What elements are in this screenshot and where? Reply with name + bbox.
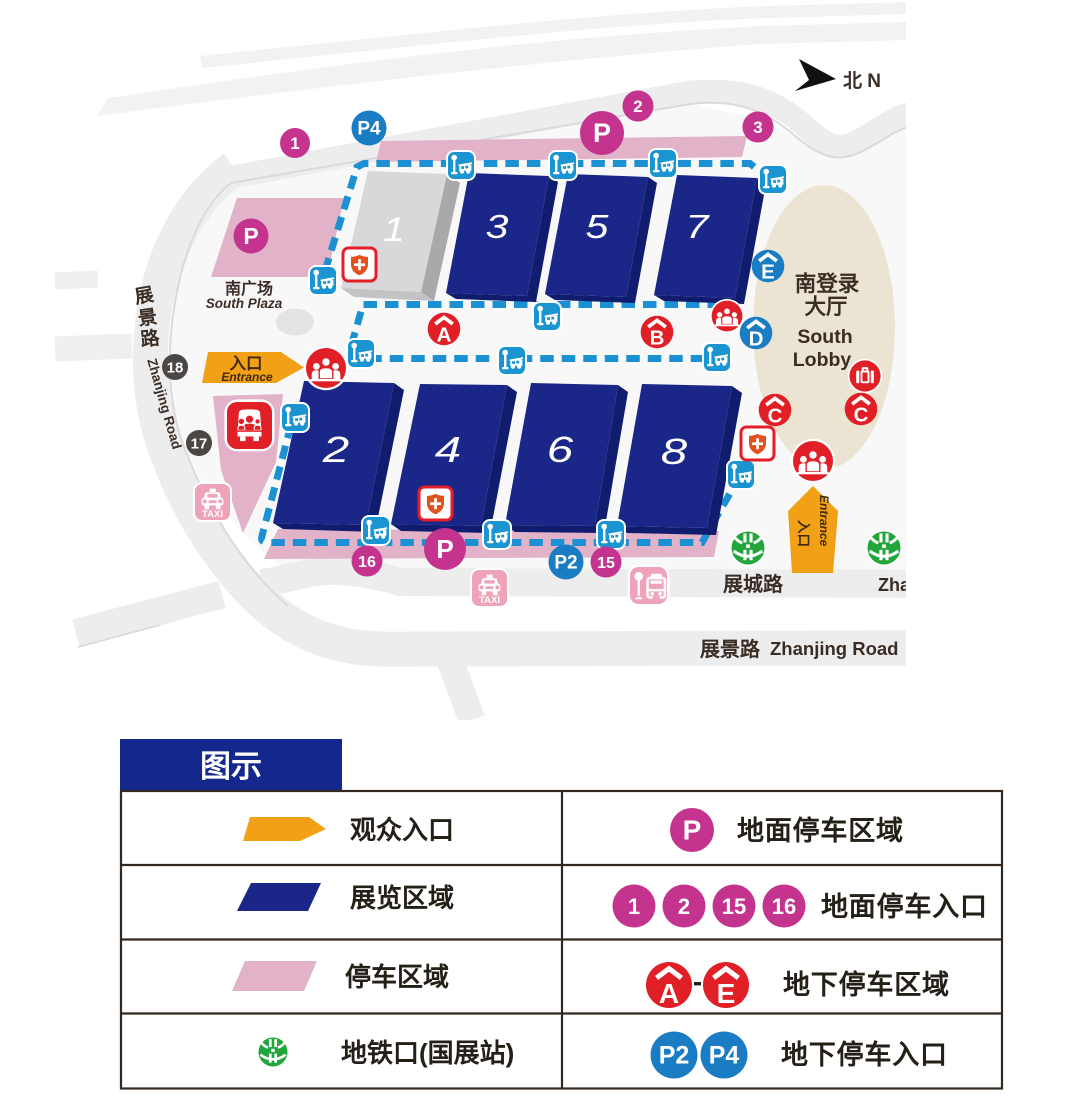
svg-text:3: 3 xyxy=(753,118,762,137)
svg-text:2: 2 xyxy=(633,97,642,116)
svg-text:P4: P4 xyxy=(357,119,381,140)
svg-text:A: A xyxy=(437,324,452,347)
svg-text:16: 16 xyxy=(358,554,376,571)
svg-text:P2: P2 xyxy=(659,1042,690,1070)
svg-text:16: 16 xyxy=(772,894,796,919)
svg-text:18: 18 xyxy=(167,360,184,377)
svg-text:1: 1 xyxy=(383,210,405,248)
svg-text:P: P xyxy=(243,223,258,249)
svg-text:C: C xyxy=(854,404,869,427)
svg-text:地下停车入口: 地下停车入口 xyxy=(781,1039,948,1070)
svg-text:5: 5 xyxy=(586,208,609,245)
svg-text:停车区域: 停车区域 xyxy=(345,962,449,992)
svg-text:15: 15 xyxy=(722,894,746,919)
svg-text:8: 8 xyxy=(661,432,688,472)
svg-text:南登录: 南登录 xyxy=(795,272,860,296)
svg-text:地铁口(国展站): 地铁口(国展站) xyxy=(341,1038,514,1068)
svg-text:P: P xyxy=(436,534,453,564)
svg-text:大厅: 大厅 xyxy=(804,295,847,319)
svg-text:展景路: 展景路 xyxy=(700,637,761,661)
svg-text:A: A xyxy=(659,978,679,1009)
svg-text:15: 15 xyxy=(597,555,615,572)
svg-text:P: P xyxy=(683,815,702,846)
svg-text:B: B xyxy=(650,327,665,350)
svg-text:展: 展 xyxy=(133,284,156,309)
svg-text:1: 1 xyxy=(628,894,640,919)
svg-text:地面停车入口: 地面停车入口 xyxy=(821,891,988,922)
svg-text:观众入口: 观众入口 xyxy=(350,815,454,845)
svg-text:地下停车区域: 地下停车区域 xyxy=(783,969,950,1000)
svg-text:E: E xyxy=(717,978,736,1009)
svg-text:展城路: 展城路 xyxy=(723,572,784,596)
svg-text:北 N: 北 N xyxy=(843,70,881,92)
svg-text:图示: 图示 xyxy=(200,749,262,784)
svg-text:6: 6 xyxy=(547,430,574,470)
svg-text:Entrance: Entrance xyxy=(817,495,831,547)
svg-text:路: 路 xyxy=(139,326,161,351)
svg-text:E: E xyxy=(761,261,775,284)
svg-text:South Plaza: South Plaza xyxy=(206,296,283,311)
svg-text:C: C xyxy=(768,405,783,428)
svg-text:Lobby: Lobby xyxy=(793,349,852,371)
svg-text:景: 景 xyxy=(137,306,159,330)
svg-text:地面停车区域: 地面停车区域 xyxy=(737,815,904,846)
svg-text:4: 4 xyxy=(435,430,461,470)
svg-text:2: 2 xyxy=(322,430,350,470)
svg-text:入口: 入口 xyxy=(796,520,811,547)
svg-text:3: 3 xyxy=(486,208,509,245)
svg-text:1: 1 xyxy=(290,134,299,153)
svg-text:P4: P4 xyxy=(709,1042,740,1070)
svg-text:South: South xyxy=(797,326,852,348)
svg-text:展览区域: 展览区域 xyxy=(350,883,454,913)
svg-text:17: 17 xyxy=(191,436,208,453)
svg-text:D: D xyxy=(749,328,764,351)
svg-text:Entrance: Entrance xyxy=(221,370,273,384)
svg-text:7: 7 xyxy=(686,208,710,245)
svg-text:Zhanc: Zhanc xyxy=(878,575,931,595)
svg-text:P2: P2 xyxy=(554,553,577,574)
svg-text:Zhanjing Road: Zhanjing Road xyxy=(770,638,898,659)
svg-text:2: 2 xyxy=(678,894,690,919)
svg-text:P: P xyxy=(593,118,611,148)
